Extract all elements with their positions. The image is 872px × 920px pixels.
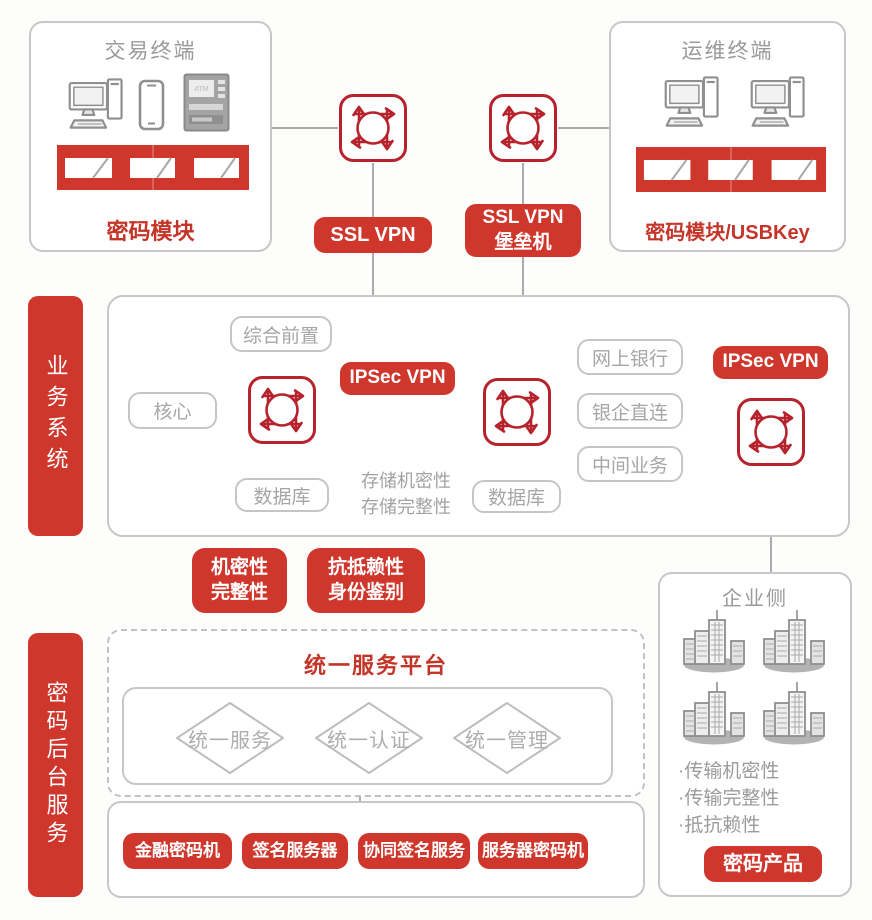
trade-terminal-panel: 交易终端 ATM — [29, 21, 272, 252]
server-hsm-badge: 服务器密码机 — [478, 833, 588, 869]
co-signature-service-text: 协同签名服务 — [363, 840, 465, 862]
storage-integrity-text: 存储完整性 — [348, 494, 464, 520]
unified-management-text: 统一管理 — [465, 724, 549, 753]
ssl-vpn-bastion-badge: SSL VPN 堡垒机 — [465, 204, 581, 257]
vpn-gateway-icon — [482, 377, 552, 447]
ops-terminal-panel: 运维终端 — [609, 21, 846, 252]
office-building-icon — [758, 680, 830, 746]
transport-integrity-text: ·传输完整性 — [678, 785, 779, 812]
desktop-computer-icon — [663, 73, 723, 131]
diamond-unified-management: 统一管理 — [452, 701, 562, 775]
node-database-2: 数据库 — [472, 480, 561, 513]
diamond-unified-authentication: 统一认证 — [314, 701, 424, 775]
ipsec-vpn-badge-1: IPSec VPN — [340, 362, 455, 395]
node-bank-direct: 银企直连 — [577, 393, 683, 429]
crypto-product-text: 密码产品 — [723, 851, 803, 877]
node-database-1: 数据库 — [235, 478, 329, 512]
transport-security-bullets: ·传输机密性 ·传输完整性 ·抵抗赖性 — [678, 758, 779, 839]
unified-service-text: 统一服务 — [188, 724, 272, 753]
node-integrated-front: 综合前置 — [230, 316, 332, 352]
crypto-product-badge: 密码产品 — [704, 846, 822, 882]
crypto-module-usbkey-label: 密码模块/USBKey — [611, 216, 844, 245]
nonrepudiation-identity-badge: 抗抵赖性 身份鉴别 — [307, 548, 425, 613]
storage-security-note: 存储机密性 存储完整性 — [348, 468, 464, 520]
vpn-gateway-icon — [488, 93, 558, 163]
server-hsm-text: 服务器密码机 — [482, 840, 584, 862]
financial-hsm-badge: 金融密码机 — [123, 833, 232, 869]
enterprise-side-title: 企业侧 — [660, 582, 850, 611]
vpn-gateway-icon — [736, 397, 806, 467]
confidentiality-text: 机密性 — [211, 556, 268, 581]
financial-hsm-text: 金融密码机 — [135, 840, 220, 862]
non-repudiation-text: 抗抵赖性 — [328, 556, 404, 581]
crypto-module-bar-icon — [57, 145, 249, 190]
integrity-text: 完整性 — [211, 581, 268, 606]
crypto-backend-tab: 密码后台服务 — [28, 633, 83, 897]
business-system-tab: 业务系统 — [28, 296, 83, 536]
ipsec-vpn-text: IPSec VPN — [722, 350, 818, 375]
ssl-vpn-bastion-line2: 堡垒机 — [494, 231, 551, 256]
office-building-icon — [758, 608, 830, 674]
node-ebank: 网上银行 — [577, 339, 683, 375]
smartphone-icon — [138, 79, 165, 131]
identity-authentication-text: 身份鉴别 — [328, 581, 404, 606]
ops-terminal-title: 运维终端 — [611, 35, 844, 65]
ssl-vpn-badge: SSL VPN — [314, 217, 432, 253]
ssl-vpn-bastion-line1: SSL VPN — [483, 206, 564, 231]
node-core: 核心 — [128, 392, 217, 429]
storage-confidentiality-text: 存储机密性 — [348, 468, 464, 494]
diagram-canvas: 交易终端 ATM — [0, 0, 872, 920]
ssl-vpn-text: SSL VPN — [330, 222, 415, 248]
node-middle-business: 中间业务 — [577, 446, 683, 482]
desktop-computer-icon — [749, 73, 809, 131]
crypto-module-label: 密码模块 — [31, 214, 270, 246]
vpn-gateway-icon — [247, 375, 317, 445]
office-building-icon — [678, 608, 750, 674]
trade-terminal-title: 交易终端 — [31, 35, 270, 65]
atm-machine-icon: ATM — [183, 73, 230, 132]
vpn-gateway-icon — [338, 93, 408, 163]
signature-server-text: 签名服务器 — [253, 840, 338, 862]
enterprise-side-panel: 企业侧 — [658, 572, 852, 897]
signature-server-badge: 签名服务器 — [242, 833, 348, 869]
unified-platform-title: 统一服务平台 — [107, 648, 645, 680]
office-building-icon — [678, 680, 750, 746]
confidentiality-integrity-badge: 机密性 完整性 — [192, 548, 287, 613]
transport-confidentiality-text: ·传输机密性 — [678, 758, 779, 785]
desktop-computer-icon — [67, 75, 127, 133]
co-signature-service-badge: 协同签名服务 — [358, 833, 470, 869]
unified-authentication-text: 统一认证 — [327, 724, 411, 753]
crypto-module-bar-icon — [636, 147, 826, 192]
svg-text:ATM: ATM — [194, 86, 208, 93]
diamond-unified-service: 统一服务 — [175, 701, 285, 775]
ipsec-vpn-text: IPSec VPN — [349, 366, 445, 391]
ipsec-vpn-badge-2: IPSec VPN — [713, 346, 828, 379]
anti-repudiation-text: ·抵抗赖性 — [678, 812, 779, 839]
